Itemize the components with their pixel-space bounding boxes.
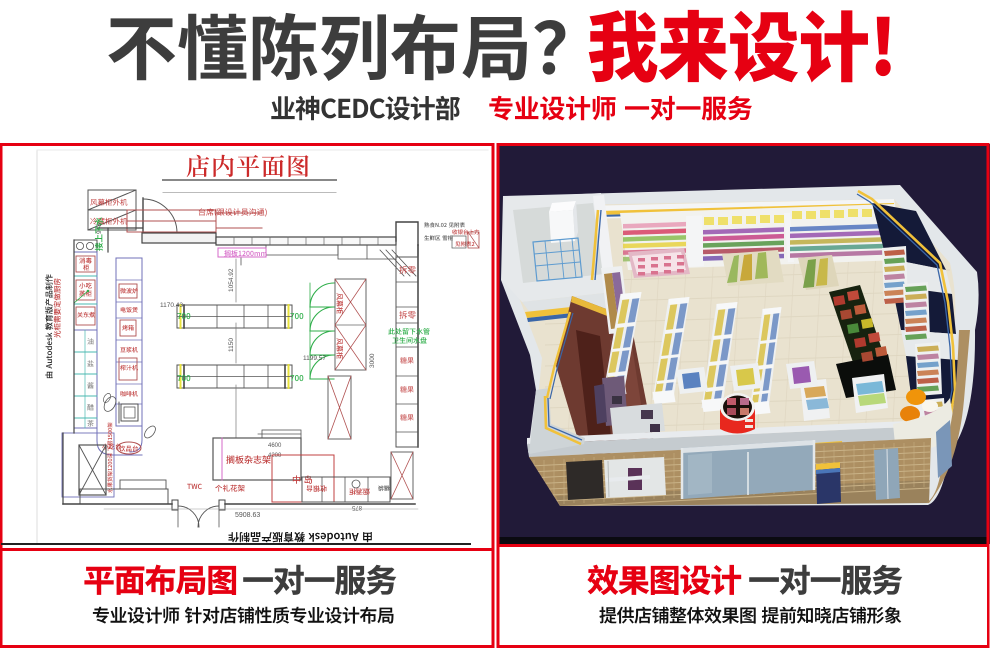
svg-text:1054.92: 1054.92 [228,268,235,292]
svg-text:4200: 4200 [268,453,282,459]
svg-text:1199.57: 1199.57 [303,355,326,362]
svg-text:5908.63: 5908.63 [235,512,260,519]
svg-text:3000: 3000 [369,353,376,368]
svg-text:1150: 1150 [228,338,235,352]
svg-text:1170.43: 1170.43 [160,302,183,309]
svg-text:4600: 4600 [268,443,282,449]
